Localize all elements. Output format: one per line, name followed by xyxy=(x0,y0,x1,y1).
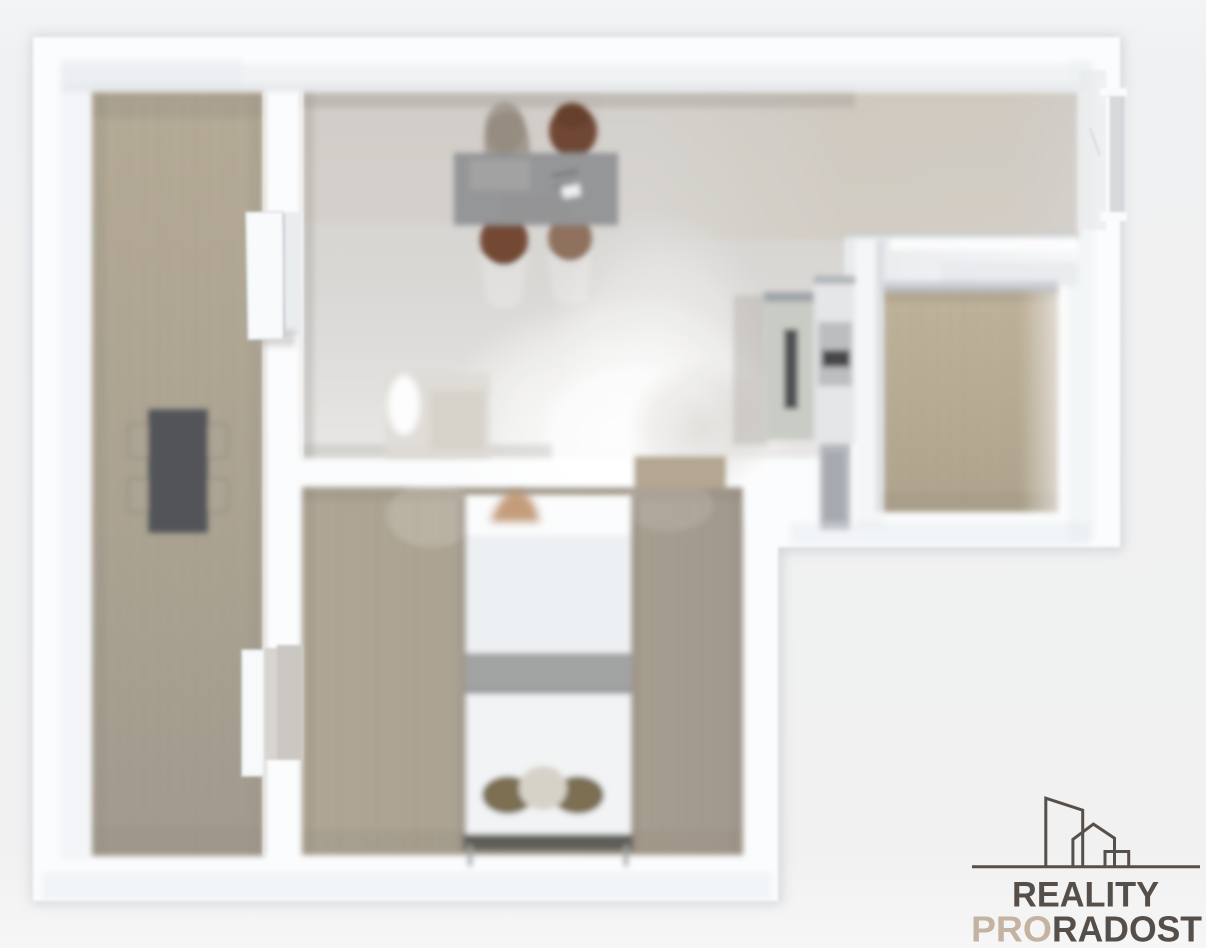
svg-text:PRO: PRO xyxy=(971,909,1052,948)
svg-text:RADOST: RADOST xyxy=(1052,909,1202,948)
